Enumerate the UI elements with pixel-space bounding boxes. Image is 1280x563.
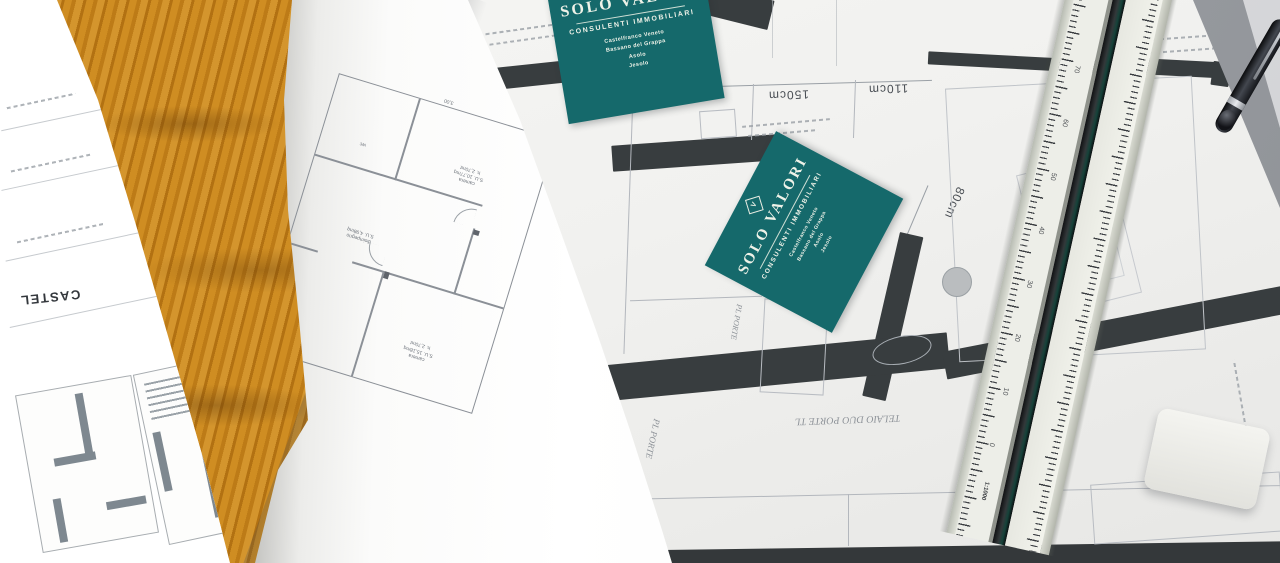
handwriting-scribble: [1233, 360, 1247, 429]
plan-wall: [394, 99, 421, 181]
plan-wall: [152, 431, 172, 491]
titleblock-line: [1, 106, 117, 132]
pencil-line: [772, 0, 773, 58]
door-arc: [453, 204, 477, 228]
plan-wall: [454, 229, 476, 295]
pencil-line: [623, 92, 633, 354]
plan-wall: [54, 451, 97, 466]
handwriting-scribble: [17, 223, 105, 244]
room-name: wc: [338, 134, 387, 154]
handwritten-note: PL PORTE: [644, 418, 662, 460]
plan-wall: [75, 393, 94, 459]
titleblock-line: [6, 229, 153, 261]
room-label: wc: [338, 134, 387, 154]
pencil-rect: [699, 109, 737, 139]
plan-wall: [351, 272, 385, 376]
pencil-line: [751, 84, 754, 140]
pencil-line: [836, 0, 837, 66]
handwritten-note: PL PORTE: [729, 303, 744, 340]
logo-letter: V: [745, 197, 763, 215]
handwritten-note: TELAIO DUO PORTE TL: [795, 412, 901, 427]
wall-segment: [611, 134, 777, 171]
mini-floor-plan: [15, 375, 159, 553]
plan-wall: [288, 241, 319, 252]
roll-title: CASTEL: [1, 285, 98, 310]
door-jamb: [383, 272, 390, 280]
plan-dimension: 3,00: [426, 92, 471, 111]
handwriting-scribble: [7, 93, 76, 110]
room-label: camera S.U. 15,18mq h. 2,70mt: [367, 327, 469, 375]
pencil-line: [630, 296, 762, 302]
diamond-logo-icon: V: [745, 196, 764, 215]
dimension-label: 150cm: [768, 87, 809, 102]
pencil-line: [853, 80, 856, 138]
plan-wall: [53, 498, 69, 543]
room-label: disimpegno S.U. 4,98mq: [310, 214, 410, 256]
column-circle: [942, 267, 972, 297]
photo-blueprints-on-desk: 110cm 150cm 110cm 80cm: [0, 0, 1280, 563]
pencil-line: [848, 494, 849, 546]
wall-segment: [615, 541, 1280, 563]
handwriting-scribble: [11, 153, 92, 172]
titleblock-line: [1, 162, 132, 191]
plan-wall: [106, 495, 147, 510]
handwriting-scribble: [742, 118, 830, 128]
dimension-label: 110cm: [868, 81, 909, 96]
room-area: S.U. 4,98mq: [311, 214, 410, 250]
